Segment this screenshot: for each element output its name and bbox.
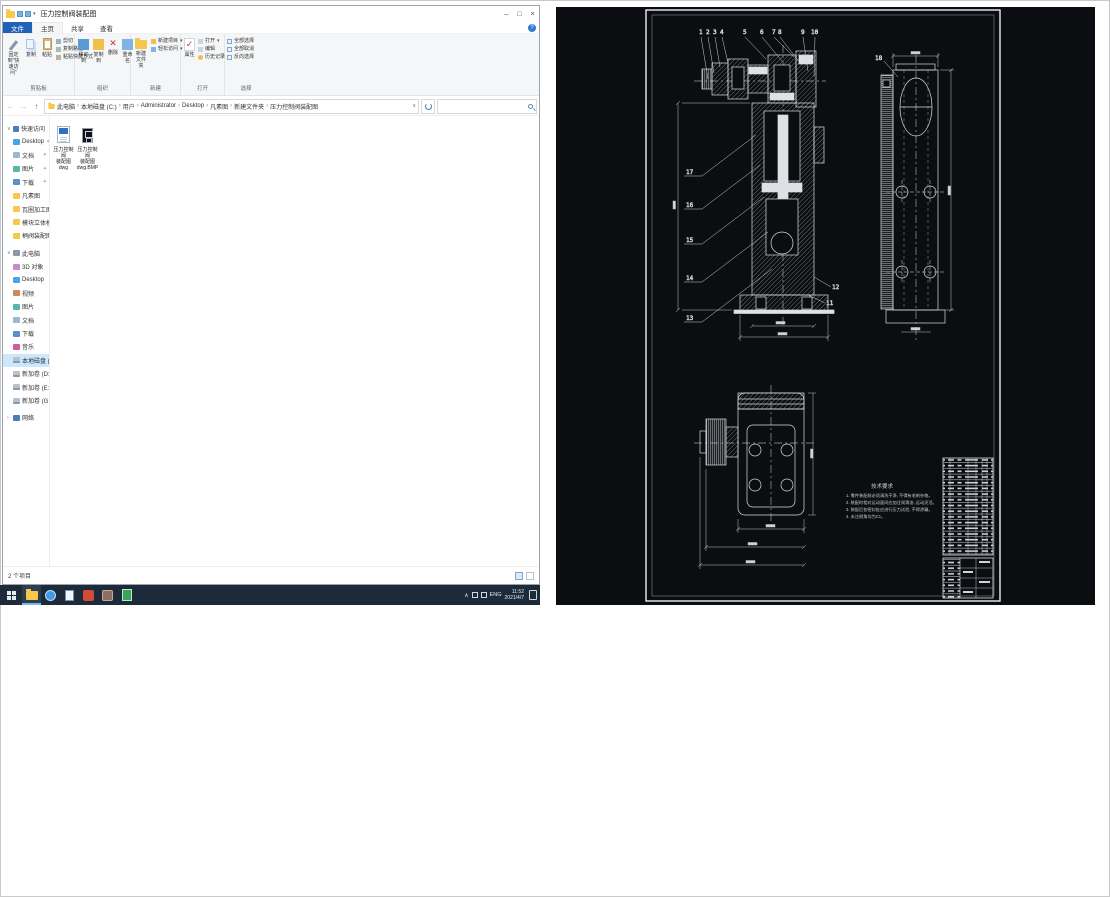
parts-list-table bbox=[943, 458, 993, 555]
folder-icon bbox=[6, 11, 15, 18]
ribbon-group-select: 全部选择 全部取消 反向选择 选择 bbox=[225, 34, 267, 95]
group-label-open: 打开 bbox=[183, 84, 222, 95]
ribbon-group-open: ✓属性 打开▾ 编辑 历史记录 打开 bbox=[181, 34, 225, 95]
chevron-icon: ∨ bbox=[7, 250, 11, 256]
file-explorer-icon bbox=[26, 591, 38, 600]
invert-selection-button[interactable]: 反向选择 bbox=[227, 54, 254, 61]
main-assembly-view bbox=[694, 45, 834, 325]
history-icon bbox=[198, 55, 203, 60]
taskbar-app-brown[interactable] bbox=[98, 585, 117, 605]
new-folder-icon bbox=[135, 40, 147, 49]
file-item-dwg[interactable]: 压力控制阀装配图dwg bbox=[52, 121, 75, 171]
notes-title: 技术要求 bbox=[871, 482, 894, 490]
callout-label: 3 bbox=[713, 29, 717, 36]
breadcrumb-item[interactable]: 用户 bbox=[123, 102, 135, 111]
breadcrumb-separator-icon: › bbox=[76, 103, 80, 109]
callout-label: 5 bbox=[743, 29, 747, 36]
action-center-icon[interactable] bbox=[529, 590, 537, 600]
history-button[interactable]: 历史记录 bbox=[198, 54, 225, 61]
select-none-button[interactable]: 全部取消 bbox=[227, 46, 254, 53]
chevron-icon: › bbox=[7, 415, 11, 421]
title-block bbox=[943, 558, 993, 598]
paste-button[interactable]: 粘贴 bbox=[40, 36, 54, 59]
sidebar-item-folder[interactable]: 模块立体模图 bbox=[3, 216, 49, 229]
pin-icon: ✦ bbox=[43, 166, 47, 172]
sidebar-item-local-disk-c[interactable]: 本地磁盘 (C:) bbox=[3, 354, 49, 367]
thumbnails-view-button[interactable] bbox=[526, 572, 534, 580]
taskbar: ∧ ENG 11:522021/4/7 bbox=[0, 585, 540, 605]
screenshot-root: ▾ 压力控制阀装配图 – □ × 文件 主页 共享 查看 ? 固定到"快速访问" bbox=[0, 0, 1110, 897]
breadcrumb-separator-icon: › bbox=[177, 103, 181, 109]
pin-icon bbox=[9, 40, 18, 51]
qat-newfolder-icon[interactable] bbox=[25, 11, 31, 17]
pin-icon: ✦ bbox=[43, 179, 47, 185]
sidebar-item-desktop[interactable]: Desktop bbox=[3, 273, 49, 286]
pin-to-quick-access-button[interactable]: 固定到"快速访问" bbox=[5, 36, 22, 77]
sidebar-item-music[interactable]: 音乐 bbox=[3, 340, 49, 353]
language-indicator[interactable]: ENG bbox=[490, 592, 502, 598]
breadcrumb-separator-icon: › bbox=[265, 103, 269, 109]
navigation-pane: ∨快速访问 Desktop✦ 文档✦ 图片✦ 下载✦ 凡素图 瓦圈加工图 模块立… bbox=[3, 116, 50, 566]
callout-label: 4 bbox=[720, 29, 724, 36]
documents-icon bbox=[13, 317, 20, 323]
taskbar-app-red[interactable] bbox=[79, 585, 98, 605]
sidebar-item-downloads[interactable]: 下载 bbox=[3, 327, 49, 340]
window-controls: – □ × bbox=[500, 6, 539, 22]
bottom-view bbox=[694, 385, 816, 523]
group-label-select: 选择 bbox=[227, 84, 265, 95]
cad-drawing: 1 2 3 4 5 6 7 8 9 10 17 16 15 bbox=[556, 7, 1095, 605]
sidebar-section-this-pc[interactable]: ∨此电脑 bbox=[3, 247, 49, 260]
file-item-bmp[interactable]: 压力控制阀装配图dwg.BMP bbox=[76, 121, 99, 171]
copy-to-icon bbox=[93, 39, 104, 50]
red-app-icon bbox=[83, 590, 94, 601]
edit-button[interactable]: 编辑 bbox=[198, 46, 225, 53]
dwg-file-icon bbox=[57, 126, 70, 143]
green-app-icon bbox=[122, 589, 132, 601]
sidebar-item-pictures[interactable]: 图片✦ bbox=[3, 162, 49, 175]
folder-icon bbox=[48, 104, 54, 109]
sidebar-item-folder[interactable]: 柄阀装配图 bbox=[3, 229, 49, 242]
taskbar-app-green[interactable] bbox=[117, 585, 136, 605]
breadcrumb-item[interactable]: Desktop bbox=[182, 103, 204, 109]
status-bar: 2 个项目 bbox=[3, 566, 539, 584]
chevron-icon: ∨ bbox=[7, 126, 11, 132]
easy-access-icon bbox=[151, 47, 156, 52]
invert-selection-icon bbox=[227, 55, 232, 60]
quick-access-toolbar: ▾ bbox=[3, 11, 36, 18]
details-view-button[interactable] bbox=[515, 572, 523, 580]
note-line: 4. 未注倒角均为C1。 bbox=[846, 513, 885, 520]
drive-icon bbox=[13, 398, 20, 404]
breadcrumb-separator-icon: › bbox=[136, 103, 140, 109]
refresh-button[interactable] bbox=[421, 99, 435, 114]
back-button[interactable]: ← bbox=[5, 102, 16, 111]
qat-customize-chevron-icon[interactable]: ▾ bbox=[33, 11, 36, 17]
refresh-icon bbox=[425, 103, 432, 110]
callout-label: 7 bbox=[772, 29, 776, 36]
system-tray: ∧ ENG 11:522021/4/7 bbox=[464, 589, 540, 601]
downloads-icon bbox=[13, 331, 20, 337]
paste-icon bbox=[43, 38, 52, 50]
drive-icon bbox=[13, 384, 20, 390]
breadcrumb-separator-icon: › bbox=[205, 103, 209, 109]
new-item-icon bbox=[151, 39, 156, 44]
browser-icon bbox=[45, 590, 56, 601]
brown-app-icon bbox=[102, 590, 113, 601]
folder-icon bbox=[13, 219, 20, 225]
breadcrumb-item[interactable]: Administrator bbox=[141, 103, 176, 109]
copy-icon bbox=[26, 39, 34, 49]
group-label-organize: 组织 bbox=[77, 84, 128, 95]
copy-button[interactable]: 复制 bbox=[24, 36, 38, 59]
callout-label: 10 bbox=[811, 29, 819, 36]
computer-icon bbox=[13, 250, 20, 256]
chevron-down-icon: ▾ bbox=[217, 38, 220, 45]
taskbar-office[interactable] bbox=[60, 585, 79, 605]
callout-label: 11 bbox=[826, 300, 834, 307]
pictures-icon bbox=[13, 304, 20, 310]
sidebar-item-documents[interactable]: 文档✦ bbox=[3, 149, 49, 162]
move-to-icon bbox=[78, 39, 89, 50]
ribbon-group-organize: 移动到 复制到 ✕删除 重命名 组织 bbox=[75, 34, 131, 95]
open-icon bbox=[198, 39, 203, 44]
folder-icon bbox=[13, 233, 20, 239]
sidebar-item-videos[interactable]: 视频 bbox=[3, 287, 49, 300]
bmp-thumbnail-icon bbox=[82, 128, 93, 143]
callout-label: 2 bbox=[706, 29, 710, 36]
side-view bbox=[881, 55, 946, 342]
pin-icon: ✦ bbox=[43, 152, 47, 158]
folder-icon bbox=[13, 206, 20, 212]
ribbon: 固定到"快速访问" 复制 粘贴 剪切 复制路径 粘贴快捷方式 bbox=[3, 34, 539, 96]
sidebar-item-pictures[interactable]: 图片 bbox=[3, 300, 49, 313]
copy-to-button[interactable]: 复制到 bbox=[92, 36, 105, 65]
cad-preview-panel: 1 2 3 4 5 6 7 8 9 10 17 16 15 bbox=[556, 7, 1095, 605]
tab-file[interactable]: 文件 bbox=[3, 22, 32, 33]
desktop-icon bbox=[13, 139, 20, 145]
callout-label: 6 bbox=[760, 29, 764, 36]
properties-button[interactable]: ✓属性 bbox=[183, 36, 196, 59]
clock[interactable]: 11:522021/4/7 bbox=[505, 589, 524, 601]
callout-label: 14 bbox=[686, 275, 694, 282]
taskbar-browser[interactable] bbox=[41, 585, 60, 605]
show-hidden-icons-chevron-icon[interactable]: ∧ bbox=[464, 592, 468, 599]
sidebar-item-downloads[interactable]: 下载✦ bbox=[3, 176, 49, 189]
downloads-icon bbox=[13, 179, 20, 185]
delete-button[interactable]: ✕删除 bbox=[107, 36, 119, 57]
callout-label: 12 bbox=[832, 284, 840, 291]
paste-shortcut-icon bbox=[56, 55, 61, 60]
file-name: 压力控制阀装配图dwg.BMP bbox=[76, 147, 99, 171]
callout-18: 18 bbox=[875, 55, 898, 77]
sidebar-item-folder[interactable]: 凡素图 bbox=[3, 189, 49, 202]
ribbon-group-clipboard: 固定到"快速访问" 复制 粘贴 剪切 复制路径 粘贴快捷方式 bbox=[3, 34, 75, 95]
delete-icon: ✕ bbox=[108, 38, 119, 49]
sidebar-item-volume-e[interactable]: 新加卷 (E:) bbox=[3, 380, 49, 393]
cut-icon bbox=[56, 39, 61, 44]
easy-access-button[interactable]: 轻松访问▾ bbox=[151, 46, 183, 53]
document-app-icon bbox=[65, 590, 74, 601]
help-button[interactable]: ? bbox=[528, 24, 536, 32]
explorer-window: ▾ 压力控制阀装配图 – □ × 文件 主页 共享 查看 ? 固定到"快速访问" bbox=[2, 5, 540, 585]
breadcrumb-item[interactable]: 压力控制阀装配图 bbox=[270, 102, 318, 111]
minimize-button[interactable]: – bbox=[500, 6, 513, 22]
sidebar-item-volume-g[interactable]: 新加卷 (G:) bbox=[3, 394, 49, 407]
ribbon-tabs: 文件 主页 共享 查看 ? bbox=[3, 22, 539, 34]
tab-share[interactable]: 共享 bbox=[63, 22, 92, 33]
3d-objects-icon bbox=[13, 264, 20, 270]
search-icon bbox=[528, 104, 533, 109]
note-line: 3. 装配后各密封处应进行压力试验, 不得渗漏。 bbox=[846, 506, 933, 513]
technical-notes: 技术要求 1. 零件装配前必须清洗干净, 不得有毛刺杂物。 2. 装配时相对运动… bbox=[846, 482, 937, 520]
note-line: 1. 零件装配前必须清洗干净, 不得有毛刺杂物。 bbox=[846, 492, 933, 499]
sidebar-item-documents[interactable]: 文档 bbox=[3, 313, 49, 326]
file-name: 压力控制阀装配图dwg bbox=[52, 147, 75, 171]
breadcrumb-separator-icon: › bbox=[118, 103, 122, 109]
tab-view[interactable]: 查看 bbox=[92, 22, 121, 33]
callout-label: 1 bbox=[699, 29, 703, 36]
qat-properties-icon[interactable] bbox=[17, 11, 23, 17]
ribbon-group-new: 新建文件夹 新建项目▾ 轻松访问▾ 新建 bbox=[131, 34, 181, 95]
group-label-new: 新建 bbox=[133, 84, 178, 95]
maximize-button[interactable]: □ bbox=[513, 6, 526, 22]
sidebar-item-folder[interactable]: 瓦圈加工图 bbox=[3, 202, 49, 215]
edit-icon bbox=[198, 47, 203, 52]
taskbar-file-explorer[interactable] bbox=[22, 585, 41, 605]
select-all-button[interactable]: 全部选择 bbox=[227, 38, 254, 45]
select-all-icon bbox=[227, 39, 232, 44]
callout-label: 9 bbox=[801, 29, 805, 36]
file-list[interactable]: 压力控制阀装配图dwg 压力控制阀装配图dwg.BMP bbox=[50, 116, 539, 566]
group-label-clipboard: 剪贴板 bbox=[5, 84, 72, 95]
move-to-button[interactable]: 移动到 bbox=[77, 36, 90, 65]
window-title: 压力控制阀装配图 bbox=[41, 9, 97, 19]
breadcrumb-item[interactable]: 凡素图 bbox=[210, 102, 228, 111]
search-box[interactable] bbox=[437, 99, 537, 114]
desktop-icon bbox=[13, 277, 20, 283]
callout-label: 8 bbox=[778, 29, 782, 36]
breadcrumb-separator-icon: › bbox=[229, 103, 233, 109]
sidebar-item-desktop[interactable]: Desktop✦ bbox=[3, 135, 49, 148]
breadcrumb-item[interactable]: 新建文件夹 bbox=[234, 102, 264, 111]
start-button[interactable] bbox=[0, 585, 22, 605]
forward-button[interactable]: → bbox=[18, 102, 29, 111]
sidebar-section-quick-access[interactable]: ∨快速访问 bbox=[3, 122, 49, 135]
open-button[interactable]: 打开▾ bbox=[198, 38, 225, 45]
documents-icon bbox=[13, 152, 20, 158]
title-bar[interactable]: ▾ 压力控制阀装配图 – □ × bbox=[3, 6, 539, 22]
sidebar-item-volume-d[interactable]: 新加卷 (D:) bbox=[3, 367, 49, 380]
breadcrumb[interactable]: 此电脑› 本地磁盘 (C:)› 用户› Administrator› Deskt… bbox=[44, 99, 419, 114]
callout-label: 17 bbox=[686, 169, 694, 176]
address-dropdown-chevron-icon[interactable]: ∨ bbox=[412, 103, 416, 109]
windows-logo-icon bbox=[7, 591, 16, 600]
up-button[interactable]: ↑ bbox=[31, 102, 42, 111]
select-none-icon bbox=[227, 47, 232, 52]
search-input[interactable] bbox=[438, 100, 528, 113]
sidebar-section-network[interactable]: ›网络 bbox=[3, 411, 49, 424]
tray-icon[interactable] bbox=[472, 592, 478, 598]
network-icon bbox=[13, 415, 20, 421]
item-count: 2 个项目 bbox=[8, 571, 31, 580]
new-item-button[interactable]: 新建项目▾ bbox=[151, 38, 183, 45]
tab-home[interactable]: 主页 bbox=[32, 22, 63, 33]
properties-icon: ✓ bbox=[184, 38, 195, 51]
drive-icon bbox=[13, 357, 20, 363]
callout-label: 15 bbox=[686, 237, 694, 244]
star-icon bbox=[13, 126, 19, 132]
sidebar-item-3d-objects[interactable]: 3D 对象 bbox=[3, 260, 49, 273]
pictures-icon bbox=[13, 166, 20, 172]
close-button[interactable]: × bbox=[526, 6, 539, 22]
note-line: 2. 装配时相对运动面间应加注润滑油, 运动灵活。 bbox=[846, 499, 937, 506]
drive-icon bbox=[13, 371, 20, 377]
tray-icon[interactable] bbox=[481, 592, 487, 598]
folder-icon bbox=[13, 193, 20, 199]
music-icon bbox=[13, 344, 20, 350]
breadcrumb-item[interactable]: 本地磁盘 (C:) bbox=[81, 102, 117, 111]
callout-label: 18 bbox=[875, 55, 883, 62]
callout-label: 16 bbox=[686, 202, 694, 209]
new-folder-button[interactable]: 新建文件夹 bbox=[133, 36, 149, 70]
videos-icon bbox=[13, 290, 20, 296]
copy-path-icon bbox=[56, 47, 61, 52]
breadcrumb-item[interactable]: 此电脑 bbox=[57, 102, 75, 111]
address-bar: ← → ↑ 此电脑› 本地磁盘 (C:)› 用户› Administrator›… bbox=[3, 97, 539, 116]
callout-label: 13 bbox=[686, 315, 694, 322]
